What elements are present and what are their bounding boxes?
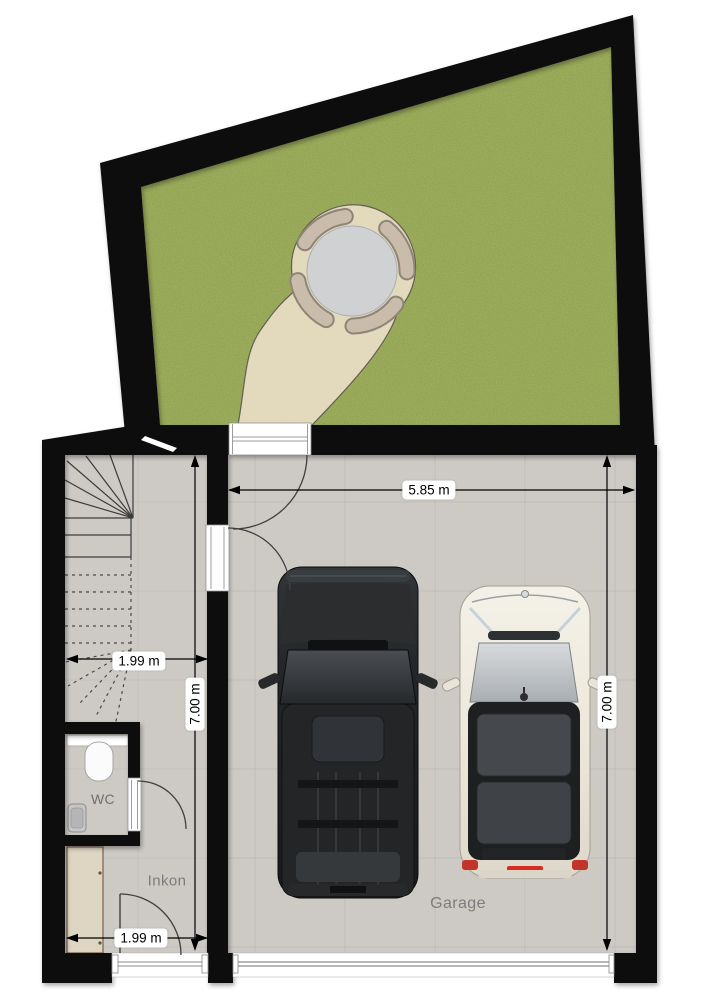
dim-label-depth-left: 7.00 m: [186, 677, 205, 730]
suv-windshield: [280, 650, 416, 704]
car-panoramic-roof: [477, 714, 571, 776]
suv-rear-window: [296, 852, 400, 882]
left-wall: [42, 440, 65, 983]
taillight: [572, 860, 588, 870]
wc-wall-bottom: [65, 835, 140, 846]
black-suv: [257, 567, 439, 898]
garage-door: [233, 953, 614, 977]
wardrobe-handle: [98, 941, 101, 944]
suv-hood: [280, 583, 416, 645]
floor-plan: 5.85 m 7.00 m 7.00 m 1.99 m 1.99 m WC In…: [0, 0, 707, 1000]
car-rear-glass: [477, 782, 571, 844]
dim-label-entrance-upper: 1.99 m: [112, 652, 165, 671]
label-entrance: Inkon: [148, 873, 187, 890]
taillight: [462, 860, 478, 870]
dim-label-depth-right: 7.00 m: [598, 675, 617, 728]
wc-door: [128, 778, 141, 831]
bottom-wall-left: [42, 953, 112, 983]
interior-door: [206, 525, 229, 591]
suv-sunroof: [312, 716, 384, 762]
bottom-wall-middle: [208, 953, 233, 983]
toilet-icon: [85, 742, 113, 781]
label-garage: Garage: [430, 895, 486, 913]
car-logo: [522, 591, 529, 598]
label-wc: WC: [91, 791, 115, 807]
right-wall: [636, 445, 657, 983]
wardrobe-handle: [98, 871, 101, 874]
garden-door: [229, 423, 311, 455]
plan-canvas: [0, 0, 707, 1000]
white-hatchback: [441, 586, 607, 878]
dim-label-garage-width: 5.85 m: [402, 481, 455, 500]
dim-label-entrance-lower: 1.99 m: [114, 929, 167, 948]
